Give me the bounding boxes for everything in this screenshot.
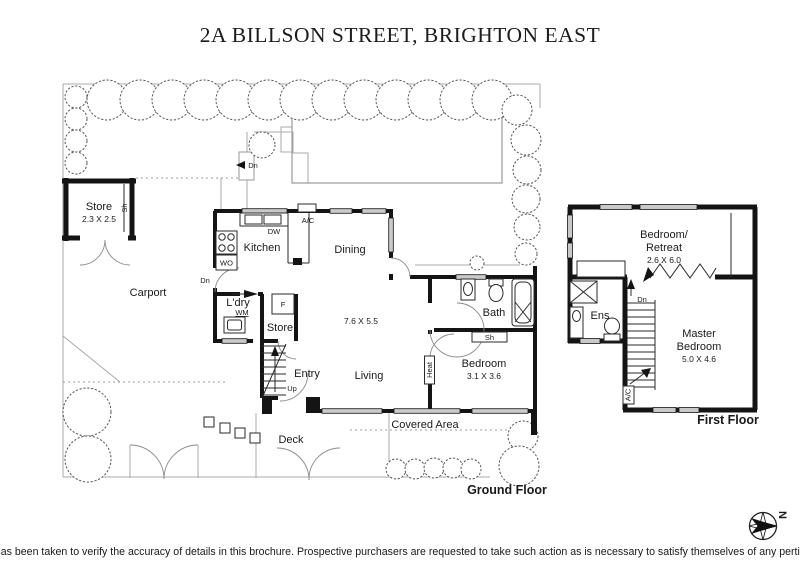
annotation-up: Up [287, 384, 297, 393]
compass-north-label: N [776, 511, 788, 519]
dim-label-bedroom: 3.1 X 3.6 [467, 371, 501, 381]
ground-floor-plan: Store 2.3 X 2.5 Sh Dn [62, 161, 547, 497]
pavers [204, 417, 260, 443]
room-label-bedroom: Bedroom [462, 358, 507, 370]
dim-label-store-outdoor: 2.3 X 2.5 [82, 214, 116, 224]
ac-unit [298, 204, 316, 212]
deck-corner-post [306, 397, 320, 413]
room-label-ens: Ens [591, 310, 610, 322]
annotation-dw: DW [268, 227, 281, 236]
room-label-master-1: Master [682, 328, 716, 340]
room-label-retreat-1: Bedroom/ [640, 229, 689, 241]
room-label-retreat-2: Retreat [646, 242, 682, 254]
annotation-fridge: F [281, 300, 286, 309]
dim-label-master: 5.0 X 4.6 [682, 354, 716, 364]
room-label-deck: Deck [278, 434, 304, 446]
disclaimer-text: Every care has been taken to verify the … [0, 546, 800, 558]
page-title: 2A BILLSON STREET, BRIGHTON EAST [200, 23, 600, 47]
annotation-ac-ground: A/C [302, 216, 315, 225]
stove [216, 231, 237, 254]
toilet [489, 285, 503, 302]
annotation-dn-steps: Dn [248, 161, 258, 170]
compass-icon: N [749, 511, 788, 540]
first-floor-plan: Dn A/C Bedroom/ Retreat 2.6 X 6.0 Ens Ma… [568, 205, 760, 428]
garden-store-room: Store 2.3 X 2.5 Sh [62, 178, 136, 265]
room-label-bath: Bath [483, 307, 506, 319]
annotation-ac-first: A/C [624, 388, 633, 401]
dim-label-living: 7.6 X 5.5 [344, 316, 378, 326]
room-label-dining: Dining [334, 244, 365, 256]
ground-floor-label: Ground Floor [467, 483, 547, 497]
annotation-wo: WO [220, 259, 233, 268]
first-stairs: Dn A/C [623, 279, 655, 404]
room-label-master-2: Bedroom [677, 341, 722, 353]
ground-stairs [262, 344, 286, 398]
heater-unit: Heat [425, 356, 435, 384]
annotation-sh-store: Sh [120, 203, 129, 212]
annotation-sh-bath: Sh [485, 333, 494, 342]
room-label-living: Living [355, 370, 384, 382]
room-label-laundry: L'dry [226, 297, 250, 309]
room-label-covered: Covered Area [391, 419, 459, 431]
room-label-carport: Carport [130, 287, 167, 299]
entry-corner-post [262, 398, 272, 414]
room-label-kitchen: Kitchen [244, 242, 281, 254]
up-arrow-icon [271, 346, 279, 356]
room-label-store-inner: Store [267, 322, 293, 334]
room-label-store-outdoor: Store [86, 201, 112, 213]
floorplan-page: 2A BILLSON STREET, BRIGHTON EAST [0, 0, 800, 566]
zigzag-line [643, 264, 716, 282]
annotation-dn-kitchen: Dn [200, 276, 210, 285]
annotation-dn-first: Dn [637, 295, 647, 304]
annotation-heat: Heat [425, 361, 434, 378]
pool-outline [292, 113, 502, 183]
room-label-entry: Entry [294, 368, 320, 380]
annotation-wm: WM [235, 308, 248, 317]
first-floor-label: First Floor [697, 413, 759, 427]
dim-label-retreat: 2.6 X 6.0 [647, 255, 681, 265]
stair-up-arrow-icon [627, 279, 635, 289]
covered-corner-post [531, 411, 537, 435]
robe [577, 261, 625, 277]
floorplan-canvas: 2A BILLSON STREET, BRIGHTON EAST [0, 0, 800, 566]
